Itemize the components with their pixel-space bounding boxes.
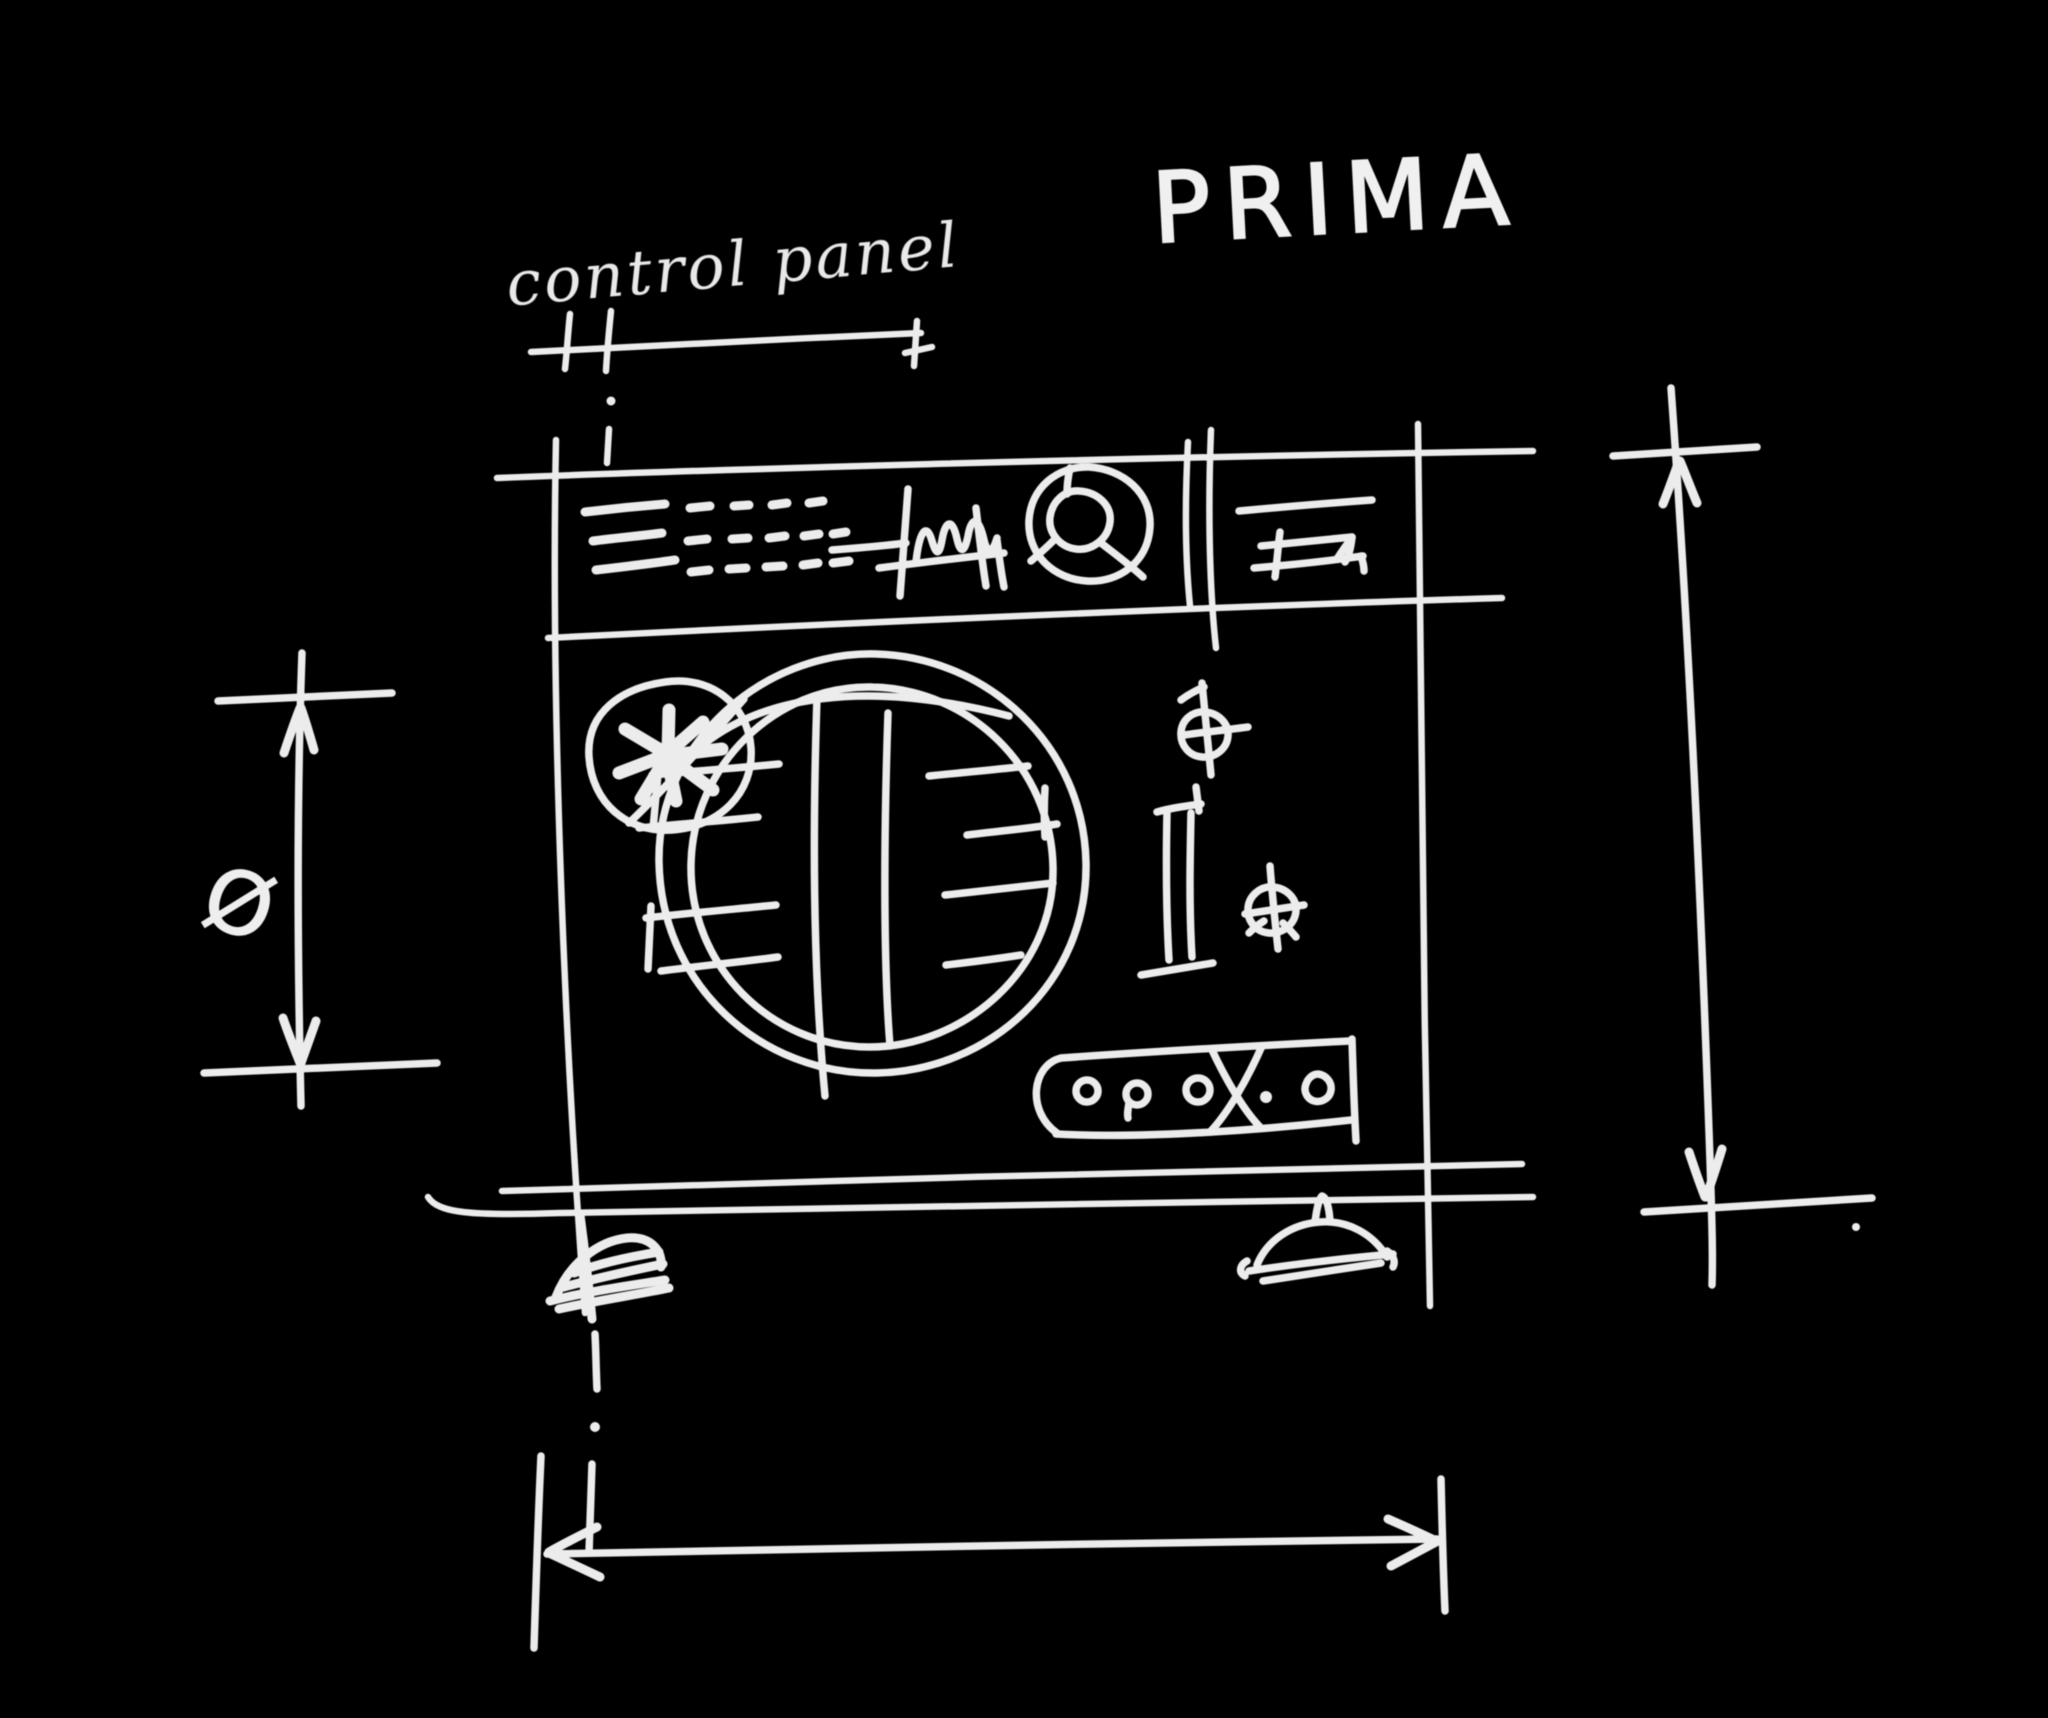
sketch-canvas: PRIMA control panel Ø [0, 0, 2048, 1718]
button-dot [1260, 1091, 1272, 1103]
title-prima: PRIMA [1149, 133, 1524, 265]
black-background [0, 0, 2048, 1718]
